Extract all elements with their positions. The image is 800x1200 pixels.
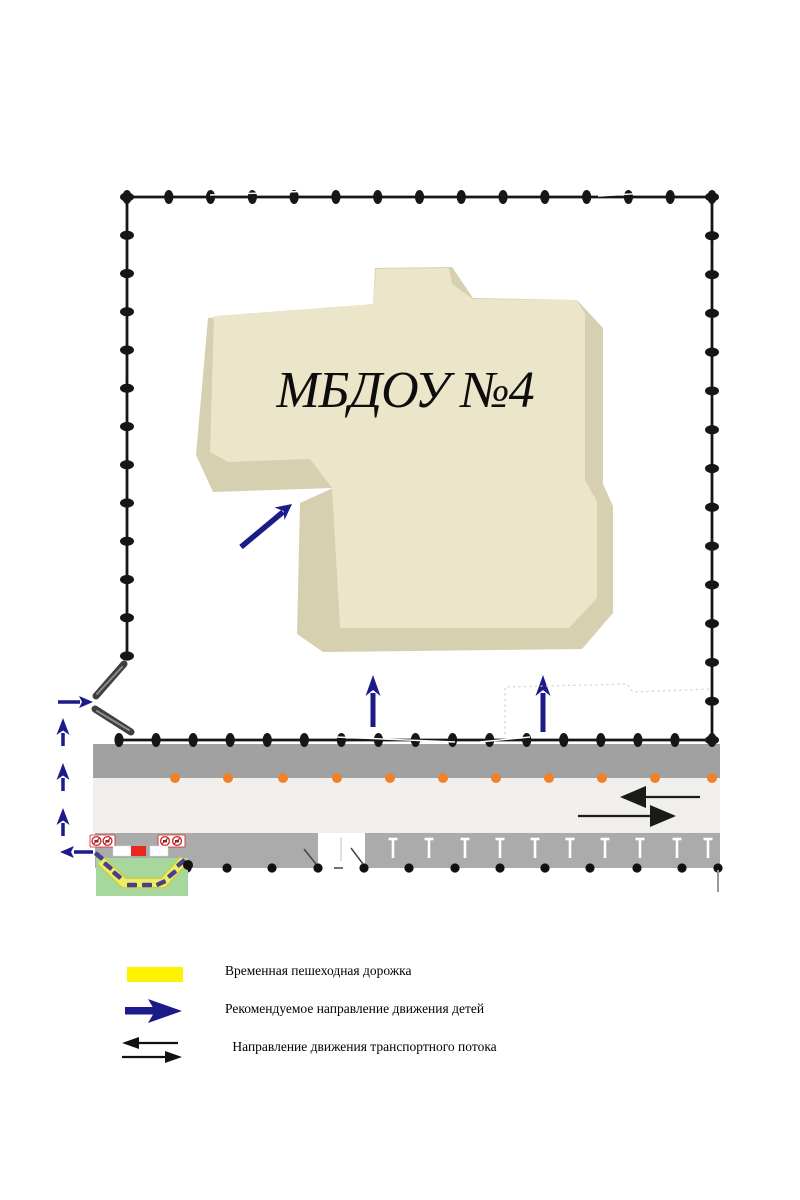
curb-post-dot	[222, 863, 231, 872]
legend-label-children-direction: Рекомендуемое направление движения детей	[225, 1001, 484, 1017]
fence-post-dot	[582, 190, 591, 204]
orange-marker-dot	[170, 773, 180, 783]
curb-post-dot	[677, 863, 686, 872]
fence-post-dot	[248, 190, 257, 204]
sidewalk-strip	[93, 744, 720, 778]
no-entry-sign-right	[158, 835, 185, 847]
curb-post-dot	[450, 863, 459, 872]
fence-post-dot	[300, 733, 309, 747]
fence-post-dot	[705, 658, 719, 667]
orange-marker-dot	[597, 773, 607, 783]
fence-post-dot	[705, 309, 719, 318]
fence-post-dot	[120, 422, 134, 431]
curb-post-dot	[404, 863, 413, 872]
fence-post-dot	[559, 733, 568, 747]
fence-post-dot	[624, 190, 633, 204]
route-arrow-up2-head	[536, 675, 551, 696]
fence-post-dot	[498, 190, 507, 204]
fence-post-dot	[666, 190, 675, 204]
curb-post-dot	[585, 863, 594, 872]
fence-post-dot	[705, 348, 719, 357]
orange-marker-dot	[332, 773, 342, 783]
fence-post-dot	[705, 503, 719, 512]
fence-post-dot	[540, 190, 549, 204]
fence-post-dot	[120, 613, 134, 622]
fence-post-dot	[120, 345, 134, 354]
fence-post-dot	[705, 425, 719, 434]
orange-marker-dot	[385, 773, 395, 783]
fence-post-dot	[120, 460, 134, 469]
fence-post-dot	[633, 733, 642, 747]
route-arrow-west-head	[60, 846, 74, 858]
fence-post-dot	[337, 733, 346, 747]
walkway-dash	[127, 883, 137, 888]
fence-post-dot	[485, 733, 494, 747]
curb-post-dot	[495, 863, 504, 872]
walkway-dotted-outline	[505, 684, 712, 734]
fence-post-dot	[120, 192, 134, 201]
curb-post-dot	[540, 863, 549, 872]
fence-post-dot	[596, 733, 605, 747]
fence-post-dot	[120, 575, 134, 584]
fence-post-dot	[206, 190, 215, 204]
fence-post-dot	[164, 190, 173, 204]
orange-marker-dot	[223, 773, 233, 783]
fence-post-dot	[448, 733, 457, 747]
building-top-face	[210, 268, 597, 628]
fence-post-dot	[707, 733, 716, 747]
road-block-red	[131, 846, 146, 856]
road-blocks	[113, 846, 168, 856]
fence-post-dot	[189, 733, 198, 747]
fence-post-dot	[705, 541, 719, 550]
legend-label-walkway: Временная пешеходная дорожка	[225, 963, 411, 979]
fence-post-dot	[263, 733, 272, 747]
legend-traffic-flow-icon	[118, 1035, 190, 1067]
route-arrow-gate-head	[79, 696, 93, 708]
fence-post-dot	[374, 733, 383, 747]
fence-post-dot	[331, 190, 340, 204]
fence-post-dot	[705, 270, 719, 279]
fence-post-dot	[522, 733, 531, 747]
fence-post-dot	[120, 651, 134, 660]
orange-marker-dot	[707, 773, 717, 783]
gate-bar-upper-highlight	[97, 667, 122, 694]
orange-marker-dot	[278, 773, 288, 783]
fence-post-dot	[226, 733, 235, 747]
route-arrow-ne-shaft	[241, 512, 283, 547]
building	[196, 267, 613, 652]
parking-strip-right	[365, 833, 720, 868]
walkway-end-post	[183, 860, 193, 870]
fence-post-dot	[705, 192, 719, 201]
legend-children-arrow-icon	[120, 998, 192, 1028]
fence-post-dot	[705, 386, 719, 395]
fence-post-dot	[120, 537, 134, 546]
curb-post-dot	[632, 863, 641, 872]
orange-marker-dot	[438, 773, 448, 783]
fence-post-dot	[705, 619, 719, 628]
no-entry-sign-left	[90, 835, 115, 847]
fence-post-dot	[373, 190, 382, 204]
gate-bar-lower-highlight	[97, 711, 129, 730]
legend-walkway-swatch	[127, 967, 183, 982]
fence-post-dot	[705, 464, 719, 473]
route-arrow-up1-head	[366, 675, 381, 696]
fence-post-dot	[120, 498, 134, 507]
fence-post-dot	[120, 269, 134, 278]
fence-post-dot	[457, 190, 466, 204]
orange-marker-dot	[544, 773, 554, 783]
fence-post-dot	[151, 733, 160, 747]
walkway-dash	[142, 883, 152, 888]
site-plan-page: МБДОУ №4 Временная пешеходная дорожка Ре…	[0, 0, 800, 1200]
fence-post-dot	[705, 580, 719, 589]
fence-post-dot	[705, 697, 719, 706]
gate	[95, 664, 131, 732]
roadway	[93, 778, 720, 833]
fence-post-dot	[120, 384, 134, 393]
fence-post-dot	[415, 190, 424, 204]
fence-post-dot	[120, 307, 134, 316]
orange-marker-dot	[650, 773, 660, 783]
legend-label-traffic-flow: Направление движения транспортного поток…	[229, 1039, 497, 1055]
curb-post-dot	[313, 863, 322, 872]
fence-post-dot	[670, 733, 679, 747]
fence-post-dot	[114, 733, 123, 747]
fence-post-dot	[120, 231, 134, 240]
curb-post-dot	[267, 863, 276, 872]
building-label: МБДОУ №4	[255, 358, 555, 423]
orange-marker-dot	[491, 773, 501, 783]
curb-post-dot	[359, 863, 368, 872]
fence-post-dot	[705, 231, 719, 240]
